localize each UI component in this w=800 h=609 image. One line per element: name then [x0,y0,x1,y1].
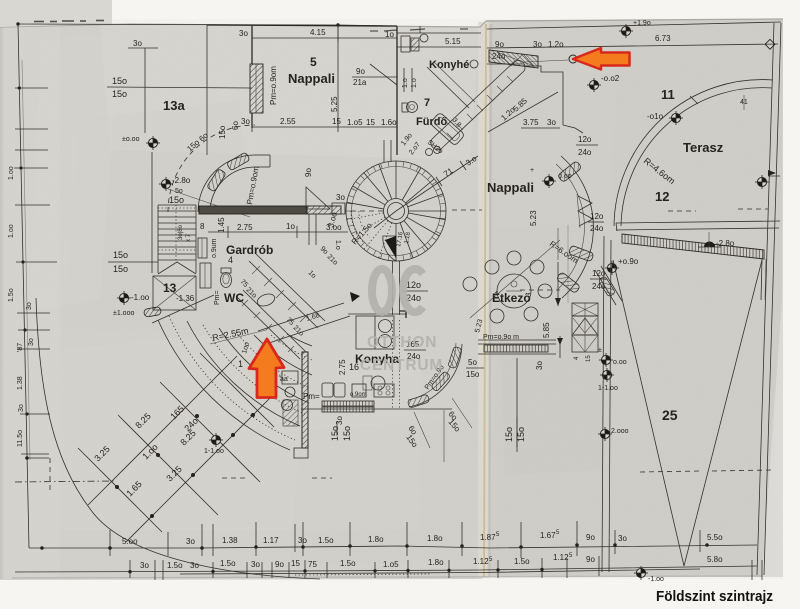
svg-text:1.o5: 1.o5 [347,118,363,127]
svg-text:WC: WC [224,291,244,305]
svg-text:15o: 15o [330,426,340,441]
svg-text:±: ± [598,347,602,354]
svg-text:o.9um: o.9um [211,238,218,258]
svg-text:4: 4 [228,255,233,265]
svg-text:-2.8o: -2.8o [172,176,191,185]
svg-text:1.12: 1.12 [473,557,489,566]
svg-text:Pm=o.9o m: Pm=o.9o m [483,334,519,341]
svg-text:15o: 15o [504,427,514,442]
svg-text:2.ooo: 2.ooo [611,428,629,435]
svg-text:1.5o: 1.5o [220,559,236,568]
svg-text:9o: 9o [586,533,595,542]
svg-text:11: 11 [661,87,675,102]
svg-text:±o.oo: ±o.oo [122,136,140,143]
svg-text:1.8o: 1.8o [427,534,443,543]
svg-text:5o: 5o [468,358,477,367]
svg-text:13a: 13a [163,98,185,113]
svg-text:5.23: 5.23 [529,210,538,226]
svg-text:1-1.oo: 1-1.oo [598,385,618,392]
svg-text:OTTHON: OTTHON [367,334,437,351]
svg-text:13: 13 [163,281,177,295]
svg-text:1.5o: 1.5o [340,559,356,568]
svg-text:Konyhé: Konyhé [429,59,469,71]
svg-text:3o: 3o [26,302,33,310]
svg-text:1.87: 1.87 [480,533,496,542]
svg-text:1.oo: 1.oo [8,166,15,180]
svg-text:15o: 15o [516,427,526,442]
svg-text:2.55: 2.55 [280,117,296,126]
svg-text:Pm=: Pm= [214,290,221,305]
svg-text:24o: 24o [590,224,604,233]
svg-text:9o: 9o [586,555,595,564]
svg-text:-o1o: -o1o [647,112,664,121]
svg-text:1-1.oo: 1-1.oo [204,448,224,455]
svg-text:+: + [530,167,534,174]
svg-text:3o: 3o [298,536,307,545]
svg-text:12: 12 [655,189,669,204]
svg-text:1.8o: 1.8o [368,535,384,544]
svg-text:15o: 15o [113,264,128,274]
svg-text:9o: 9o [275,560,284,569]
svg-text:15o: 15o [218,125,227,139]
svg-text:15: 15 [366,118,375,127]
svg-text:11.5o: 11.5o [17,430,24,447]
svg-text:12o: 12o [590,212,604,221]
svg-text:1.5o: 1.5o [167,561,183,570]
svg-text:3o|8o: 3o|8o [178,224,184,240]
svg-text:o.oo: o.oo [613,359,627,366]
svg-text:+1.9o: +1.9o [633,20,651,27]
svg-text:75: 75 [308,560,317,569]
svg-text:5.5o: 5.5o [707,533,723,542]
svg-text:21a: 21a [353,78,367,87]
svg-text:3o: 3o [239,29,248,38]
svg-text:3o: 3o [190,561,199,570]
svg-text:o.9om: o.9om [350,392,367,398]
svg-text:9o: 9o [356,67,365,76]
svg-text:7: 7 [424,97,430,109]
svg-text:3o: 3o [336,193,345,202]
svg-text:5.8o: 5.8o [707,555,723,564]
svg-text:12o: 12o [406,280,421,290]
svg-text:3o: 3o [533,40,542,49]
svg-text:CENTRUM: CENTRUM [360,357,443,374]
svg-text:Földszint szintrajz: Földszint szintrajz [656,588,773,605]
svg-text:15o: 15o [113,250,128,260]
svg-text:3o: 3o [133,39,142,48]
svg-text:3o: 3o [140,561,149,570]
svg-text:1.o: 1.o [402,78,409,88]
svg-text:6.73: 6.73 [655,34,671,43]
svg-text:25: 25 [662,407,678,423]
svg-text:x 7: x 7 [186,233,192,242]
svg-text:1.5o: 1.5o [514,557,530,566]
svg-text:1.o5: 1.o5 [383,560,399,569]
svg-text:Gardrób: Gardrób [226,243,273,257]
svg-text:1.6o: 1.6o [381,118,397,127]
svg-text:1.17: 1.17 [263,536,279,545]
svg-text:15: 15 [586,355,592,362]
svg-text:1.38: 1.38 [17,376,24,390]
svg-text:1.o: 1.o [334,240,341,250]
svg-text:1.5o: 1.5o [8,288,15,302]
svg-text:9o: 9o [304,168,313,177]
svg-text:16: 16 [349,362,359,372]
svg-text:3o: 3o [18,404,25,412]
svg-text:4.15: 4.15 [310,28,326,37]
svg-text:24o: 24o [578,148,592,157]
svg-text:1.8o: 1.8o [428,558,444,567]
svg-text:15o: 15o [112,89,127,99]
svg-text:15o: 15o [112,76,127,86]
svg-text:3o: 3o [28,338,35,346]
svg-text:1: 1 [238,359,243,369]
svg-text:1o: 1o [286,222,295,231]
svg-text:3o: 3o [335,416,344,425]
svg-text:o.oo: o.oo [558,173,572,180]
svg-text:3o: 3o [186,537,195,546]
svg-text:±1.ooo: ±1.ooo [113,310,134,317]
svg-text:3o: 3o [618,534,627,543]
svg-text:͋aa: ͋aa [278,374,288,383]
svg-text:1.38: 1.38 [222,536,238,545]
svg-text:15: 15 [332,117,341,126]
svg-text:6o: 6o [231,121,240,130]
svg-text:Pm=: Pm= [303,392,320,401]
svg-text:15o: 15o [342,426,352,441]
svg-text:+o.9o: +o.9o [618,257,639,266]
svg-text:15o: 15o [466,370,480,379]
svg-text:15: 15 [291,559,300,568]
svg-text:12o: 12o [578,135,592,144]
svg-text:3.75: 3.75 [523,118,539,127]
svg-text:Étkező: Étkező [492,290,531,305]
svg-text:9o: 9o [495,40,504,49]
svg-text:Nappali: Nappali [288,71,335,86]
svg-text:-2.8o: -2.8o [716,239,735,248]
svg-text:Terasz: Terasz [683,140,724,155]
svg-text:2.75: 2.75 [338,359,347,375]
svg-text:5.15: 5.15 [445,37,461,46]
svg-text:-1.36: -1.36 [176,294,195,303]
svg-text:5.25: 5.25 [330,96,339,112]
svg-text:3o: 3o [241,117,250,126]
svg-text:1.2o: 1.2o [548,40,564,49]
svg-text:1.o: 1.o [411,78,418,88]
svg-text:1.67: 1.67 [540,531,556,540]
svg-text:3o: 3o [251,560,260,569]
svg-text:1.45: 1.45 [217,217,226,233]
svg-text:Pm=o.9om: Pm=o.9om [269,66,278,105]
svg-text:Nappali: Nappali [487,180,534,195]
svg-text:-1.oo: -1.oo [131,293,150,302]
svg-text:1.12: 1.12 [553,553,569,562]
svg-text:8: 8 [200,222,205,231]
svg-text:3o: 3o [535,361,544,370]
svg-text:5.85: 5.85 [542,322,551,338]
svg-text:1.oo: 1.oo [8,224,15,238]
svg-text:2.75: 2.75 [237,223,253,232]
svg-text:-o.o2: -o.o2 [601,74,620,83]
svg-text:1.5o: 1.5o [318,536,334,545]
svg-text:5: 5 [310,55,317,69]
svg-text:3o: 3o [547,118,556,127]
svg-text:-1.oo: -1.oo [648,576,664,583]
svg-text:'87: '87 [17,343,24,352]
svg-text:15o: 15o [169,195,184,205]
